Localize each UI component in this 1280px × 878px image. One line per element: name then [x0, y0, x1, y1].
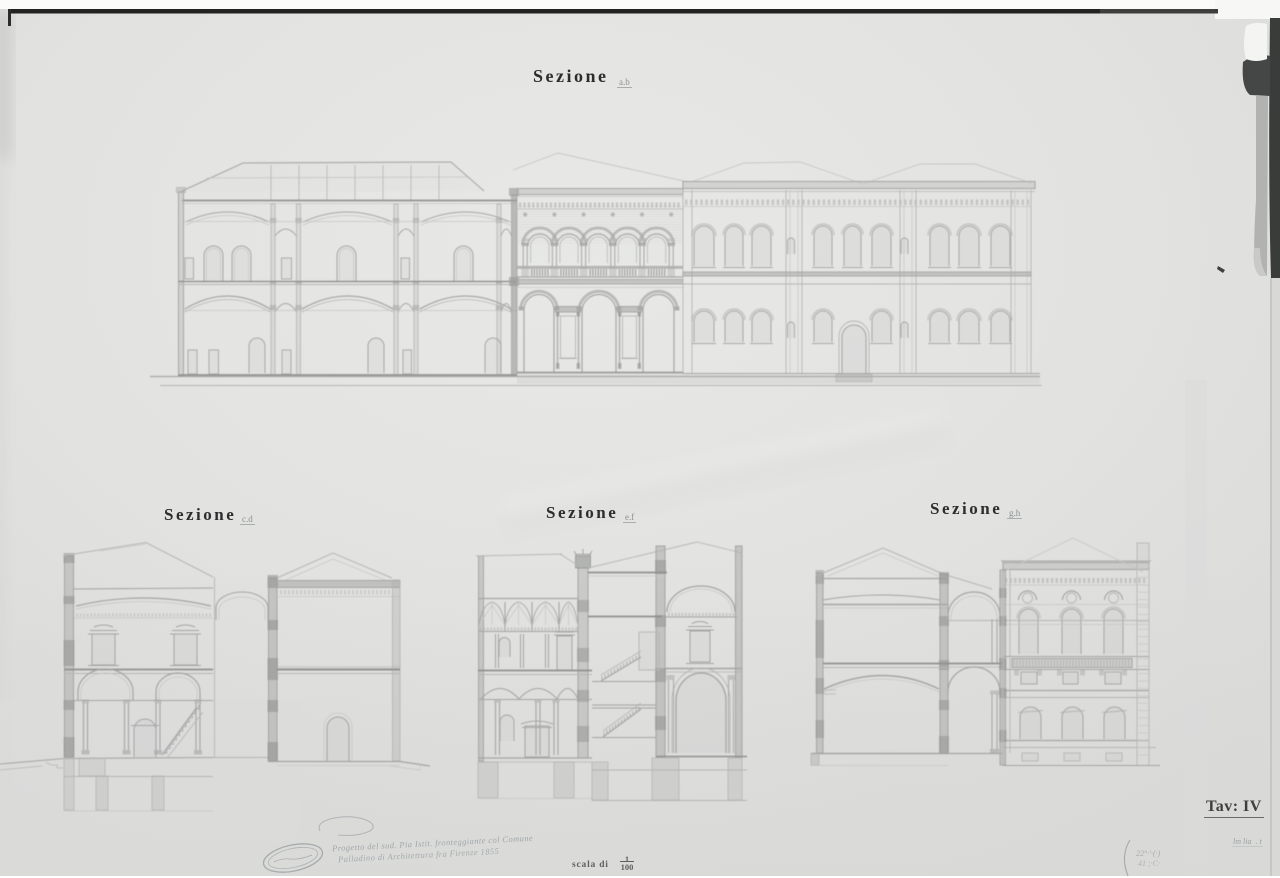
- svg-text:22°·'·(·): 22°·'·(·): [1136, 849, 1161, 858]
- svg-text:41 ;·C·: 41 ;·C·: [1138, 859, 1160, 868]
